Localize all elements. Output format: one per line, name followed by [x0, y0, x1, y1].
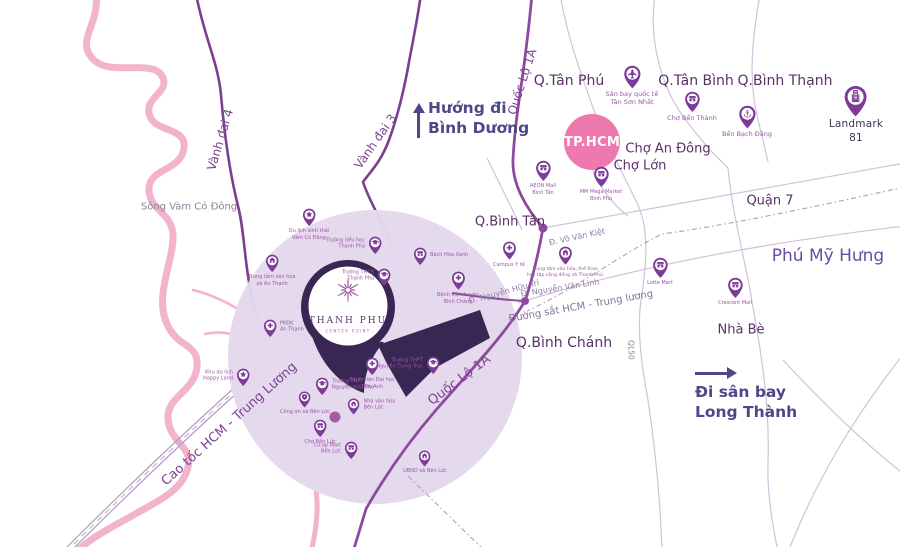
poi-cong-an-xa-ben-luc-label: Công an xã Bến Lức — [280, 409, 330, 416]
poi-nha-van-hoa-ben-luc[interactable] — [347, 398, 360, 419]
poi-mm-mega-market-binh-phu[interactable] — [593, 166, 610, 192]
poi-ttvh-xa-an-thanh-label: Trung tâm văn hóa xã An Thạnh — [248, 274, 295, 287]
poi-coop-mart-ben-luc-label: Co.op Mart Bến Lức — [314, 442, 341, 455]
ring-road-4 — [196, 0, 257, 317]
poi-bach-hoa-xanh[interactable] — [413, 247, 427, 270]
market-icon — [731, 282, 738, 287]
poi-cho-ben-thanh-label: Chợ Bến Thành — [667, 114, 717, 122]
market-icon — [539, 165, 546, 170]
direction-binh-duong-line1: Hướng đi — [428, 99, 507, 117]
poi-thpt-nguyen-trung-truc[interactable] — [426, 356, 440, 379]
railway-hcm-trung-luong — [527, 187, 900, 311]
market-icon — [317, 423, 323, 428]
market-icon — [348, 445, 354, 450]
poi-ttvh-the-thao-thanh-phu-label: Trung tâm văn hóa, thể thao học tập cộng… — [527, 267, 603, 279]
direction-long-thanh-line2: Long Thành — [695, 403, 797, 421]
railway-south-segment — [408, 476, 486, 547]
poi-bv-huyen-binh-chanh-label: Bệnh viện huyện Bình Chánh — [437, 292, 479, 305]
market-icon — [688, 96, 695, 101]
ring-road-3 — [363, 0, 421, 246]
tphcm-hub-label: TP.HCM — [564, 135, 620, 150]
poi-pkdk-an-thanh-label: PKĐK An Thạnh — [280, 320, 304, 333]
poi-lotte-mart[interactable] — [652, 257, 669, 283]
poi-truong-thcs-thanh-phu[interactable] — [377, 268, 391, 291]
poi-bach-hoa-xanh-label: Bách Hóa Xanh — [430, 252, 468, 259]
poi-cho-ben-thanh[interactable] — [684, 91, 701, 117]
poi-campus-y-te-label: Campus Y tế — [493, 262, 525, 269]
direction-binh-duong: Hướng đi Bình Dương — [428, 98, 529, 139]
location-map: TP.HCM Hướng đi Bình Dương Đi sân bay Lo… — [0, 0, 900, 547]
project-logo-name: THANH PHU — [309, 316, 387, 326]
market-icon — [656, 262, 663, 267]
direction-long-thanh-line1: Đi sân bay — [695, 383, 786, 401]
tphcm-hub: TP.HCM — [564, 114, 620, 170]
poi-truong-th-thanh-phu-label: Trường tiểu học Thạnh Phú — [326, 237, 365, 250]
poi-thpt-nguyen-huu-tho-label: Trường THPT Nguyễn Hữu Thọ — [332, 378, 374, 391]
poi-crescent-mall-label: Crescent Mall — [718, 300, 752, 307]
poi-ben-bach-dang[interactable] — [738, 105, 757, 133]
direction-long-thanh: Đi sân bay Long Thành — [695, 382, 797, 423]
poi-san-bay-tan-son-nhat-label: Sân bay quốc tế Tân Sơn Nhất — [606, 90, 659, 107]
poi-thpt-nguyen-trung-truc-label: Trường THPT Nguyễn Trung Trực — [376, 357, 423, 370]
direction-binh-duong-line2: Bình Dương — [428, 119, 529, 137]
market-icon — [417, 251, 423, 256]
poi-truong-thcs-thanh-phu-label: Trường THCS Thạnh Phú — [342, 269, 374, 282]
poi-happy-land-label: Khu du lịch Happy Land — [203, 369, 233, 382]
poi-landmark-81-label: Landmark 81 — [829, 118, 883, 145]
poi-truong-th-thanh-phu[interactable] — [368, 236, 382, 259]
up-arrow-icon — [417, 112, 420, 138]
poi-aeon-mall-binh-tan[interactable] — [535, 160, 552, 186]
market-icon — [597, 171, 604, 176]
poi-ben-bach-dang-label: Bến Bạch Đằng — [722, 130, 772, 138]
poi-coop-mart-ben-luc[interactable] — [344, 441, 358, 464]
poi-aeon-mall-binh-tan-label: AEON Mall Bình Tân — [530, 183, 556, 196]
right-arrow-icon — [695, 372, 728, 375]
poi-san-bay-tan-son-nhat[interactable] — [623, 65, 642, 93]
poi-landmark-81[interactable] — [843, 85, 868, 122]
poi-pkdk-an-thanh[interactable] — [263, 319, 277, 342]
poi-ubnd-xa-ben-luc-label: UBND xã Bến Lức — [403, 468, 447, 475]
poi-thpt-nguyen-huu-tho[interactable] — [315, 377, 329, 400]
poi-crescent-mall[interactable] — [727, 277, 744, 303]
project-logo-subtitle: CENTER POINT — [325, 329, 370, 334]
poi-du-lich-sinh-thai-label: Du lịch sinh thái Vàm Cỏ Đông — [289, 228, 329, 241]
poi-mm-mega-market-binh-phu-label: MM Mega Market Bình Phú — [580, 189, 623, 202]
poi-nha-van-hoa-ben-luc-label: Nhà văn hóa Bến Lức — [364, 398, 396, 411]
poi-lotte-mart-label: Lotte Mart — [647, 280, 673, 287]
poi-happy-land[interactable] — [236, 368, 250, 391]
